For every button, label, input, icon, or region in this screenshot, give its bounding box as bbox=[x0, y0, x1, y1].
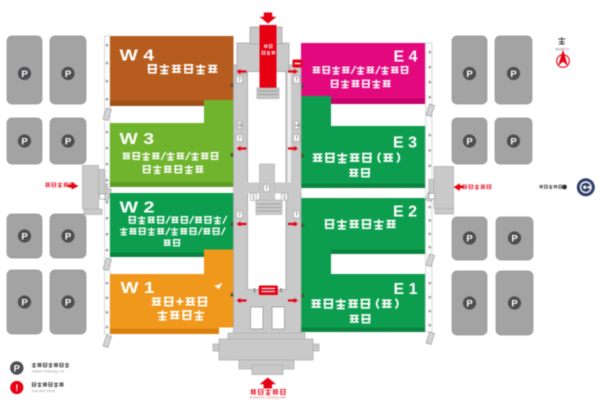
svg-text:Audience Landing Hall: Audience Landing Hall bbox=[250, 396, 286, 400]
svg-text:1: 1 bbox=[252, 195, 255, 201]
svg-text:P: P bbox=[65, 69, 72, 80]
svg-text:7: 7 bbox=[295, 77, 298, 83]
svg-text:7: 7 bbox=[238, 77, 241, 83]
svg-text:P: P bbox=[14, 363, 21, 374]
svg-text:7: 7 bbox=[238, 212, 241, 218]
svg-text:P: P bbox=[511, 298, 518, 309]
svg-text:P: P bbox=[21, 69, 28, 80]
svg-text:NORTH: NORTH bbox=[555, 48, 569, 52]
svg-text:7: 7 bbox=[295, 212, 298, 218]
svg-text:You Are Here: You Are Here bbox=[32, 388, 56, 393]
svg-text:P: P bbox=[466, 69, 473, 80]
svg-text:!: ! bbox=[15, 383, 18, 394]
svg-text:P: P bbox=[510, 136, 517, 147]
svg-text:1: 1 bbox=[280, 288, 283, 294]
svg-text:W 4: W 4 bbox=[120, 48, 155, 65]
svg-text:P: P bbox=[21, 297, 28, 308]
svg-text:W 3: W 3 bbox=[120, 131, 155, 148]
svg-text:7: 7 bbox=[295, 136, 298, 142]
svg-text:7: 7 bbox=[265, 186, 268, 192]
svg-text:P: P bbox=[466, 298, 473, 309]
svg-text:P: P bbox=[65, 231, 72, 242]
svg-text:P: P bbox=[466, 136, 473, 147]
svg-text:P: P bbox=[65, 297, 72, 308]
svg-text:1: 1 bbox=[253, 288, 256, 294]
svg-text:1: 1 bbox=[283, 195, 286, 201]
svg-text:14: 14 bbox=[294, 123, 300, 129]
svg-text:E 2: E 2 bbox=[393, 204, 417, 221]
svg-text:P: P bbox=[65, 136, 72, 147]
svg-text:E 4: E 4 bbox=[394, 49, 418, 66]
svg-text:7: 7 bbox=[238, 136, 241, 142]
svg-text:P: P bbox=[510, 69, 517, 80]
svg-text:P: P bbox=[466, 233, 473, 244]
svg-text:W 2: W 2 bbox=[120, 200, 155, 217]
svg-text:16: 16 bbox=[237, 123, 243, 129]
svg-text:Visitor Parking Lot: Visitor Parking Lot bbox=[32, 369, 65, 374]
svg-text:P: P bbox=[511, 233, 518, 244]
svg-text:P: P bbox=[21, 136, 28, 147]
svg-text:P: P bbox=[21, 231, 28, 242]
svg-text:E 3: E 3 bbox=[393, 135, 417, 152]
svg-text:W 1: W 1 bbox=[121, 280, 155, 297]
svg-text:E 1: E 1 bbox=[394, 281, 418, 298]
